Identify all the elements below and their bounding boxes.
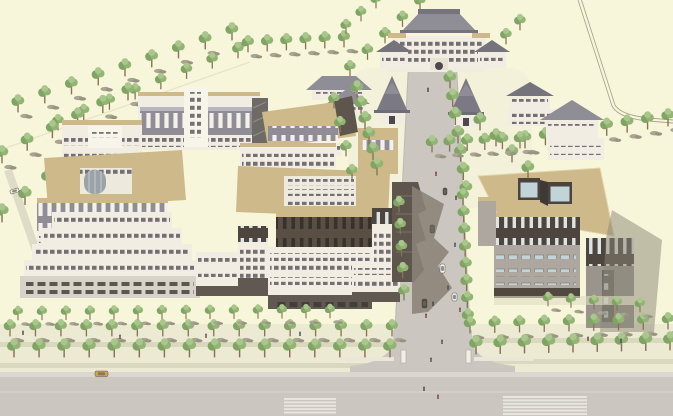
person-head [432, 302, 434, 304]
stone-windows [496, 263, 576, 272]
person-head [455, 196, 457, 198]
tree-shade-strip [0, 363, 390, 368]
person-body [587, 338, 588, 341]
east-hall-lower-windows [550, 150, 602, 155]
campus-rendering [0, 0, 673, 416]
person-head [435, 172, 437, 174]
car [430, 225, 435, 233]
car [440, 264, 445, 273]
person-body [427, 89, 428, 92]
gate-post-right [466, 350, 471, 363]
crosswalk-stripe [284, 408, 336, 410]
crosswalk-stripe [284, 398, 336, 400]
person [620, 339, 622, 344]
person [423, 387, 425, 392]
west-small-block-windows [90, 132, 120, 138]
car [443, 188, 447, 195]
person [425, 314, 427, 319]
connector-base [196, 286, 272, 296]
person-body [455, 197, 456, 200]
main-road [0, 372, 673, 416]
person [22, 331, 24, 336]
person-body [620, 340, 621, 343]
person [427, 88, 429, 93]
crosswalk-stripe [284, 412, 336, 414]
pagoda-left-eave [374, 110, 410, 113]
person [441, 340, 443, 345]
pavilion-windows [480, 56, 504, 61]
person [299, 332, 301, 337]
east-court-north-cap [240, 143, 336, 147]
person-head [427, 88, 429, 90]
person-body [432, 303, 433, 306]
stepped-base-openings [26, 282, 194, 294]
crosswalk-stripe [503, 410, 587, 412]
crosswalk-stripe [503, 403, 587, 405]
person-head [454, 243, 456, 245]
left-tower-cap [238, 226, 268, 242]
pagoda-left-door [389, 116, 395, 124]
person-body [430, 359, 431, 362]
crosswalk-stripe [503, 406, 587, 408]
person-body [205, 335, 206, 338]
person [119, 335, 121, 340]
east-wing-windows [354, 280, 398, 287]
car-roof [423, 301, 426, 306]
person [432, 302, 434, 307]
car [422, 299, 427, 308]
palace-wing-roof [472, 33, 490, 38]
person [430, 358, 432, 363]
person-head [299, 332, 301, 334]
crosswalk-stripe [284, 405, 336, 407]
person-body [119, 336, 120, 339]
south-band-cap [276, 212, 380, 217]
pagoda-right-door [463, 118, 469, 126]
sw-band-cap [494, 213, 580, 217]
car-roof [453, 295, 456, 299]
stepped-windows [44, 232, 180, 240]
south-windows [270, 253, 370, 261]
east-court-north-windows [242, 160, 334, 166]
person-head [425, 314, 427, 316]
right-tower-windows [374, 230, 394, 266]
east-courtyard-windows [286, 189, 354, 196]
palace-windows [396, 40, 482, 46]
person [435, 172, 437, 177]
gate-wall-right [474, 357, 534, 361]
pavilion-windows [382, 56, 406, 61]
east-hall-lower [548, 138, 604, 160]
person-head [205, 334, 207, 336]
sw-clerestory [494, 217, 580, 245]
car-roof [98, 372, 105, 375]
campus-rendering-svg [0, 0, 673, 416]
crosswalk-stripe [503, 399, 587, 401]
person-body [425, 315, 426, 318]
person-head [423, 387, 425, 389]
east-hall2-windows [548, 124, 596, 129]
gate-post-left [401, 350, 406, 363]
stepped-cap [56, 198, 168, 203]
palace-entrance-arch [435, 62, 443, 70]
person-head [119, 335, 121, 337]
stone-windows [496, 276, 576, 285]
person-body [454, 244, 455, 247]
person [447, 286, 449, 291]
stone-windows [496, 250, 576, 259]
east-court-north-windows [242, 150, 334, 157]
west-wing-parapet [62, 120, 142, 125]
east-courtyard-windows [286, 199, 354, 205]
person-head [620, 339, 622, 341]
person-body [435, 173, 436, 176]
car [95, 371, 108, 377]
stepped-windows [54, 216, 170, 224]
east-hall-lower-windows [550, 142, 602, 147]
person-body [459, 309, 460, 312]
person [454, 243, 456, 248]
person-body [441, 341, 442, 344]
east-wing-windows [354, 268, 398, 275]
person-body [299, 333, 300, 336]
east-hall1-windows [512, 99, 548, 104]
north-tower-windows [190, 92, 201, 138]
south-mansard-band [276, 217, 380, 247]
east-courtyard-windows [286, 179, 354, 186]
person [587, 337, 589, 342]
person-body [437, 396, 438, 399]
stepped-windows [26, 264, 194, 272]
lane-line [0, 391, 673, 393]
stepped-windows [34, 248, 190, 256]
person [437, 395, 439, 400]
car [452, 293, 457, 301]
palace-roof-ridge [418, 9, 460, 14]
crosswalk-stripe [284, 401, 336, 403]
person-head [441, 340, 443, 342]
person [459, 308, 461, 313]
palace-wing-roof [388, 33, 406, 38]
roof-box-1-glass [520, 182, 538, 198]
person-body [22, 332, 23, 335]
car-roof [431, 227, 434, 231]
person-head [437, 395, 439, 397]
person-head [459, 308, 461, 310]
person-head [22, 331, 24, 333]
gate-wall-left [340, 357, 394, 361]
left-tower-base [238, 278, 268, 286]
west-pylon [478, 200, 496, 246]
person-head [430, 358, 432, 360]
east-wing-base [352, 292, 400, 302]
car-roof [441, 266, 444, 271]
roof-box-2-glass [550, 186, 570, 202]
person-head [447, 286, 449, 288]
person [455, 196, 457, 201]
person-body [447, 287, 448, 290]
palace-eave [400, 30, 478, 33]
person-head [587, 337, 589, 339]
car-roof [444, 190, 446, 194]
crosswalk-stripe [503, 413, 587, 415]
person-body [423, 388, 424, 391]
west-pylon-cap [478, 197, 496, 201]
left-tower-windows [240, 248, 266, 278]
ne-block-skylight [268, 126, 338, 141]
roof-box-shadow [540, 180, 548, 206]
crosswalk-stripe [503, 396, 587, 398]
person [205, 334, 207, 339]
